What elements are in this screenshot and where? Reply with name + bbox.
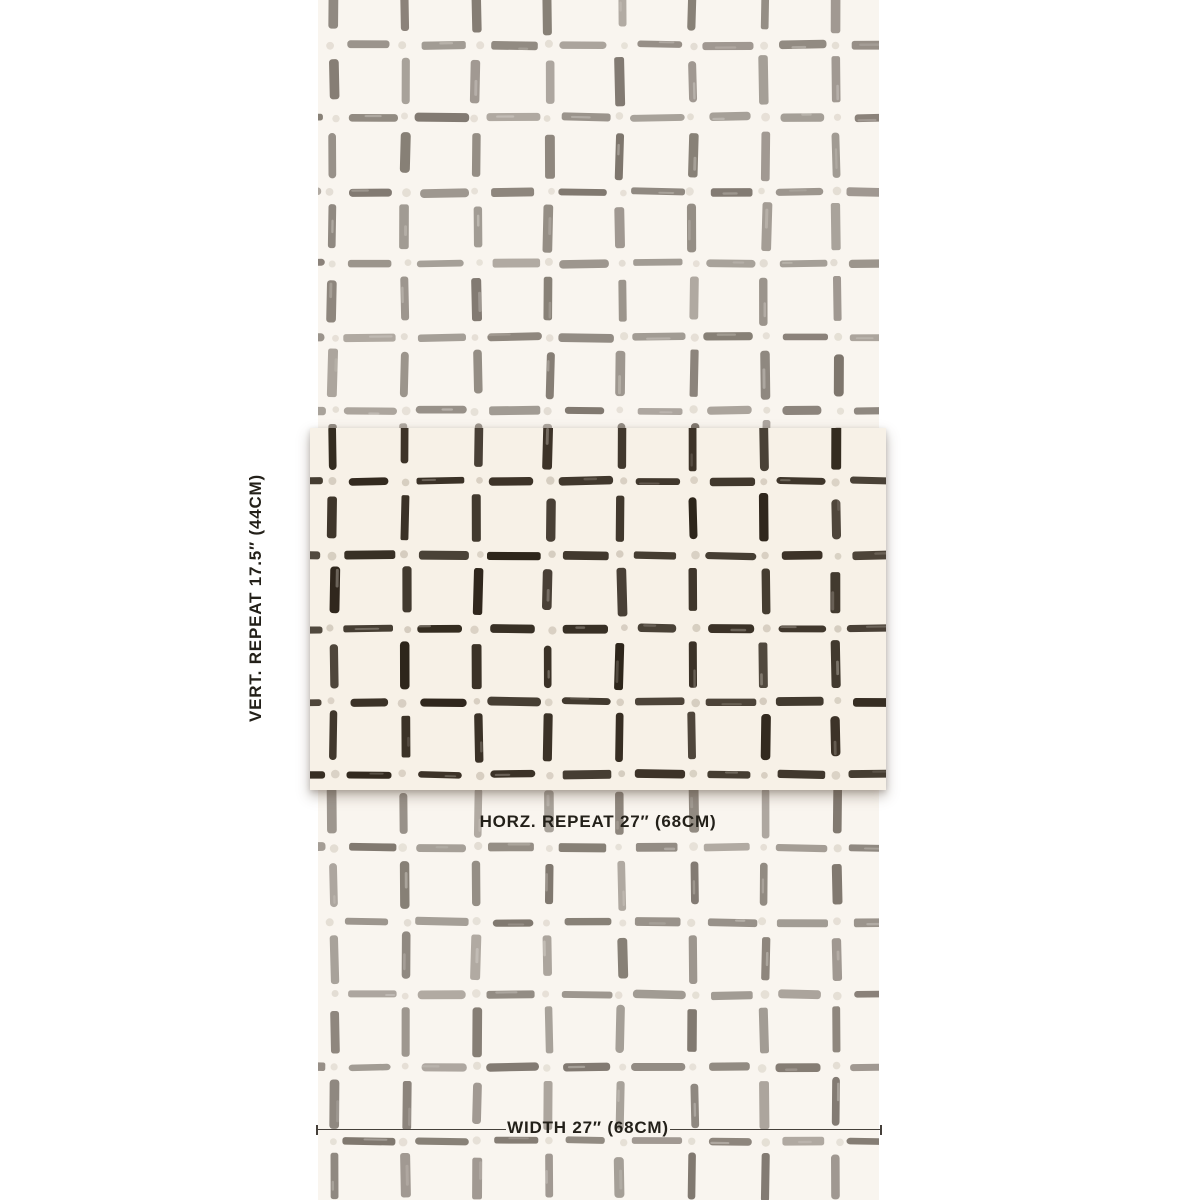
horizontal-repeat-label: HORZ. REPEAT 27″ (68CM) [480, 812, 717, 832]
repeat-swatch-overlay [310, 428, 886, 790]
width-measure-line-right [670, 1129, 882, 1130]
width-measure-tick-right [880, 1125, 882, 1135]
vertical-repeat-label: VERT. REPEAT 17.5″ (44CM) [246, 474, 266, 722]
wallpaper-measurement-diagram: VERT. REPEAT 17.5″ (44CM) HORZ. REPEAT 2… [0, 0, 1200, 1200]
width-measure-tick-left [316, 1125, 318, 1135]
width-label: WIDTH 27″ (68CM) [507, 1118, 669, 1138]
width-measure-line-left [317, 1129, 506, 1130]
wallpaper-pattern-dark [310, 428, 886, 790]
